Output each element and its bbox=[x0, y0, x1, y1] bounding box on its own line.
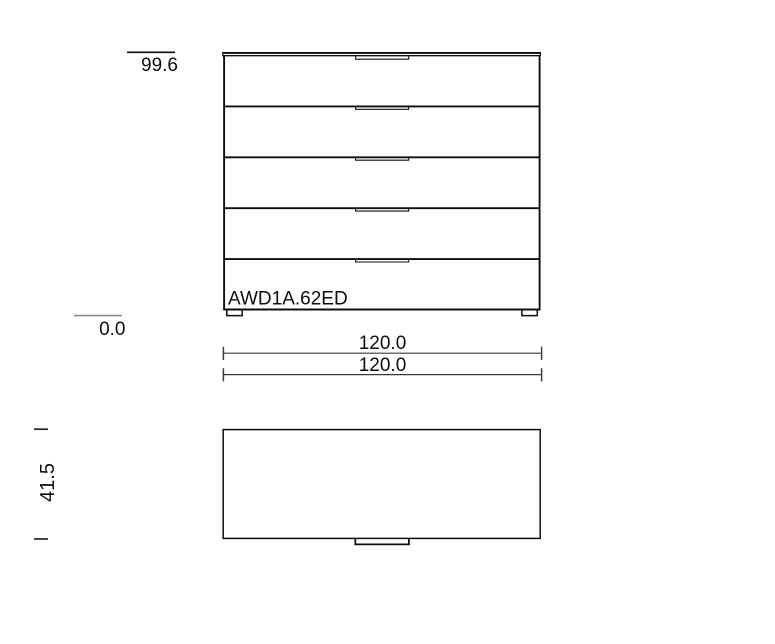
svg-text:99.6: 99.6 bbox=[141, 55, 178, 76]
svg-text:0.0: 0.0 bbox=[99, 319, 125, 340]
svg-text:120.0: 120.0 bbox=[359, 355, 407, 376]
svg-text:41.5: 41.5 bbox=[37, 463, 59, 502]
svg-text:AWD1A.62ED: AWD1A.62ED bbox=[228, 289, 348, 310]
svg-text:120.0: 120.0 bbox=[359, 333, 407, 354]
